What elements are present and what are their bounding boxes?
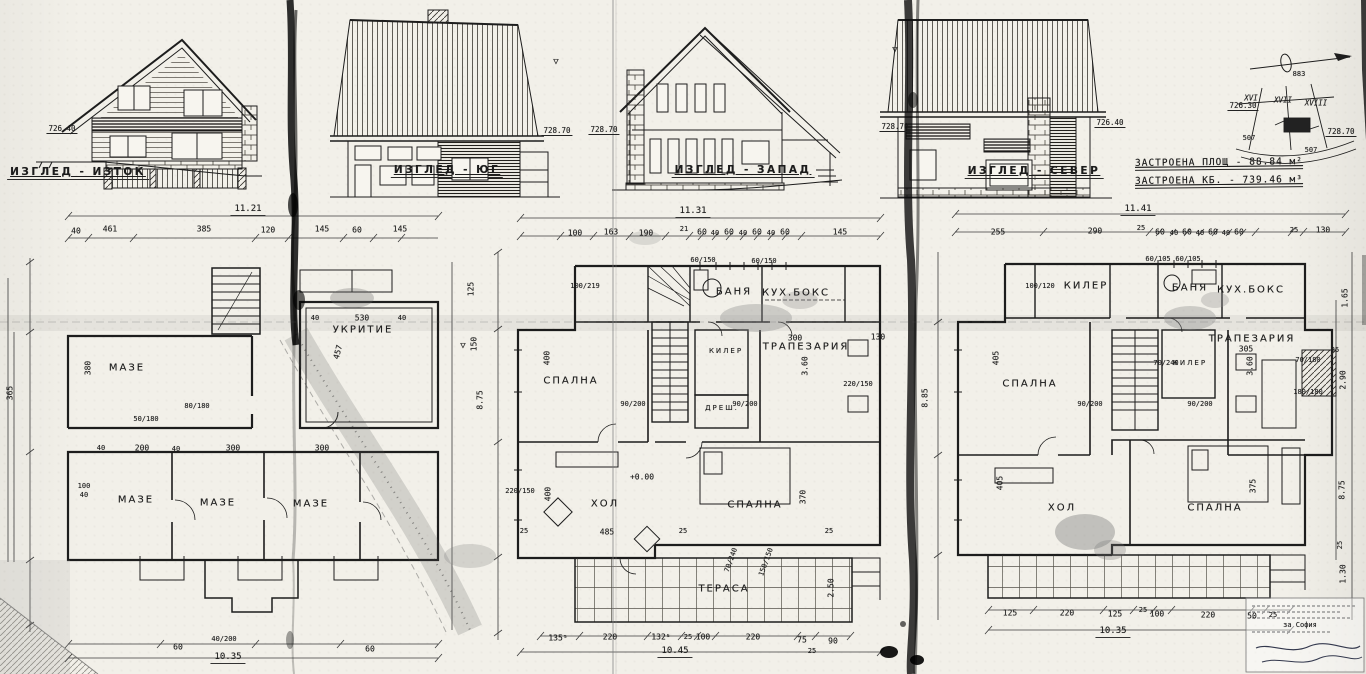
dim: 21 [680,225,688,233]
dim: 40 [711,229,719,237]
dim: 135⁵ [548,634,567,643]
dim: 40 [739,229,747,237]
level-symbol: ▽ [553,57,558,67]
dim: 3.60 [801,356,810,375]
overall-dim: 11.21 [230,204,265,216]
dim: 8.75 [1338,480,1347,499]
dim: 3.60 [1246,356,1255,375]
dim: 60 [173,643,183,652]
dim: 60 [365,645,375,654]
dim: 50/180 [133,415,158,423]
room-label: СПАЛНА [1002,379,1057,390]
view-label-north: ИЗГЛЕД - СЕВЕР [965,165,1104,179]
dim: 461 [103,225,117,234]
room-label: ТЕРАСА [698,584,749,595]
dim: 40 [398,314,406,322]
dim: 40 [1196,229,1204,237]
dim: 60 [752,228,762,237]
dim: 100 [78,482,91,490]
dim: 40 [80,491,88,499]
dim: 220 [603,633,617,642]
room-label: СПАЛНА [1187,503,1242,514]
room-label: МАЗЕ [200,498,236,509]
dim: 25 [679,527,687,535]
room-label: УКРИТИЕ [333,325,394,336]
dim: 25 [1331,346,1339,354]
dim: 405 [996,476,1005,490]
level-mark: 728.70 [588,125,619,135]
dim: 100 [1150,610,1164,619]
plot-number: 507 [1243,134,1256,142]
dim: 530 [355,314,369,323]
dim: 125 [467,282,476,296]
dim: 40 [1222,229,1230,237]
view-label-south: ИЗГЛЕД - ЮГ [391,164,503,178]
dim: 150 [470,337,479,351]
dim: 50 [1247,612,1257,621]
view-label-west: ИЗГЛЕД - ЗАПАД [672,164,815,178]
dim: 70/240 [1153,359,1178,367]
room-label: ТРАПЕЗАРИЯ [763,342,850,353]
dim: 75 [797,636,807,645]
dim: 40 [172,445,180,453]
dim: 25 [1336,541,1344,549]
dim: 150/150 [757,547,775,577]
dim: 100/219 [570,282,600,290]
room-label: МАЗЕ [118,495,154,506]
level-mark: 728.70 [1325,127,1356,137]
dim: 25 [520,527,528,535]
dim: 25 [1269,611,1277,619]
dim: 60 [1234,228,1244,237]
dim: 145 [833,228,847,237]
dim: 220/150 [843,380,873,388]
dim: 60 [352,226,362,235]
dim: 220 [1201,611,1215,620]
dim: 300 [788,334,802,343]
room-label: БАНЯ [716,287,752,298]
dim: 163 [604,228,618,237]
dim: 145 [393,225,407,234]
level-mark: 726.40 [1094,118,1125,128]
dim: 132⁵ [651,633,670,642]
blueprint-sheet: ЗАСТРОЕНА ПЛОЩ - 88.84 м² ЗАСТРОЕНА КБ. … [0,0,1366,674]
dim: 60/105 [1145,255,1170,263]
room-label: СПАЛНА [727,500,782,511]
dim: 40 [1170,229,1178,237]
dim: 365 [6,386,15,400]
room-label: ТРАПЕЗАРИЯ [1209,334,1296,345]
overall-dim: 10.35 [1095,626,1130,638]
room-label: МАЗЕ [109,363,145,374]
dim: 300 [226,444,240,453]
plot-number: 507 [1305,146,1318,154]
parcel-number: XVII [1274,96,1292,105]
dim: 25 [684,633,692,641]
dim: 400 [543,351,552,365]
view-label-east: ИЗГЛЕД - ИЗТОК [7,166,149,180]
overall-dim: 10.45 [657,646,692,658]
dim: 60/150 [751,257,776,265]
dim: 400 [544,487,553,501]
dim: 60 [1182,228,1192,237]
dim: 60 [697,228,707,237]
dim: 90 [828,637,838,646]
parcel-number: XVIII [1305,99,1328,108]
dim: 60 [1208,228,1218,237]
level-mark: 726.40 [46,124,77,134]
room-label: БАНЯ [1172,283,1208,294]
dim: 405 [992,351,1001,365]
room-label: СПАЛНА [543,376,598,387]
room-label: КУХ.БОКС [1217,285,1285,296]
dim: 145 [315,225,329,234]
dim: 1.65 [1341,288,1350,307]
dim: 220 [1060,609,1074,618]
dim: 25 [1139,606,1147,614]
room-label: МАЗЕ [293,499,329,510]
dim: 90/200 [732,400,757,408]
elevation-mark: +0.00 [630,473,654,482]
dim: 375 [1249,479,1258,493]
level-mark: 728.70 [541,126,572,136]
dim: 60/105 [1175,255,1200,263]
dim: 180/180 [1293,388,1323,396]
dim: 25 [825,527,833,535]
room-label: ХОЛ [591,499,619,510]
level-mark: 728.70 [879,122,910,132]
dim: 40/200 [211,635,236,643]
overall-dim: 11.41 [1120,204,1155,216]
dim: 25 [1290,226,1298,234]
dim: 90/200 [1187,400,1212,408]
level-symbol: ▽ [892,45,897,55]
dim: 370 [799,490,808,504]
dim: 305 [1239,345,1253,354]
dim: 100 [568,229,582,238]
stamp-text: за София [1283,621,1317,629]
dim: 200 [135,444,149,453]
dim: 60 [724,228,734,237]
dim: 60/150 [690,256,715,264]
room-label: КИЛЕР [1064,281,1108,292]
dim: 380 [84,361,93,375]
dim: 1.30 [1339,564,1348,583]
dim: 100/120 [1025,282,1055,290]
dim: 60 [780,228,790,237]
dim: 457 [332,344,344,360]
dim: 8.75 [476,390,485,409]
dim: 40 [97,444,105,452]
room-label: КУХ.БОКС [762,288,830,299]
dim: 125 [1003,609,1017,618]
dim: 130 [871,333,885,342]
dim: 125 [1108,610,1122,619]
dim: 2.90 [1339,370,1348,389]
dim: 385 [197,225,211,234]
dim: 255 [991,228,1005,237]
dim: 190 [639,229,653,238]
dim: 70/180 [1295,356,1320,364]
dim: 120 [261,226,275,235]
parcel-number: XVI [1244,94,1258,103]
dim: 40 [767,229,775,237]
dim: 300 [315,444,329,453]
level-symbol: ▽ [460,341,465,351]
dim: 8.85 [921,388,930,407]
dim: 70/240 [723,547,739,574]
dim: 40 [71,227,81,236]
dim: 485 [600,528,614,537]
room-label: КИЛЕР [709,347,743,355]
dim: 290 [1088,227,1102,236]
dim: 60 [1155,228,1165,237]
dim: 100 [696,633,710,642]
dim: 2.50 [827,578,836,597]
dim: 25 [808,647,816,655]
dim: 40 [311,314,319,322]
labels-layer: ИЗГЛЕД - ИЗТОКИЗГЛЕД - ЮГИЗГЛЕД - ЗАПАДИ… [0,0,1366,674]
dim: 90/200 [1077,400,1102,408]
dim: 220 [746,633,760,642]
dim: 25 [1137,224,1145,232]
level-mark: 726.30 [1227,101,1258,111]
dim: 130 [1316,226,1330,235]
dim: 80/180 [184,402,209,410]
dim: 220/150 [505,487,535,495]
site-number: 883 [1293,70,1306,78]
dim: 90/200 [620,400,645,408]
overall-dim: 10.35 [210,652,245,664]
room-label: ХОЛ [1048,503,1076,514]
overall-dim: 11.31 [675,206,710,218]
